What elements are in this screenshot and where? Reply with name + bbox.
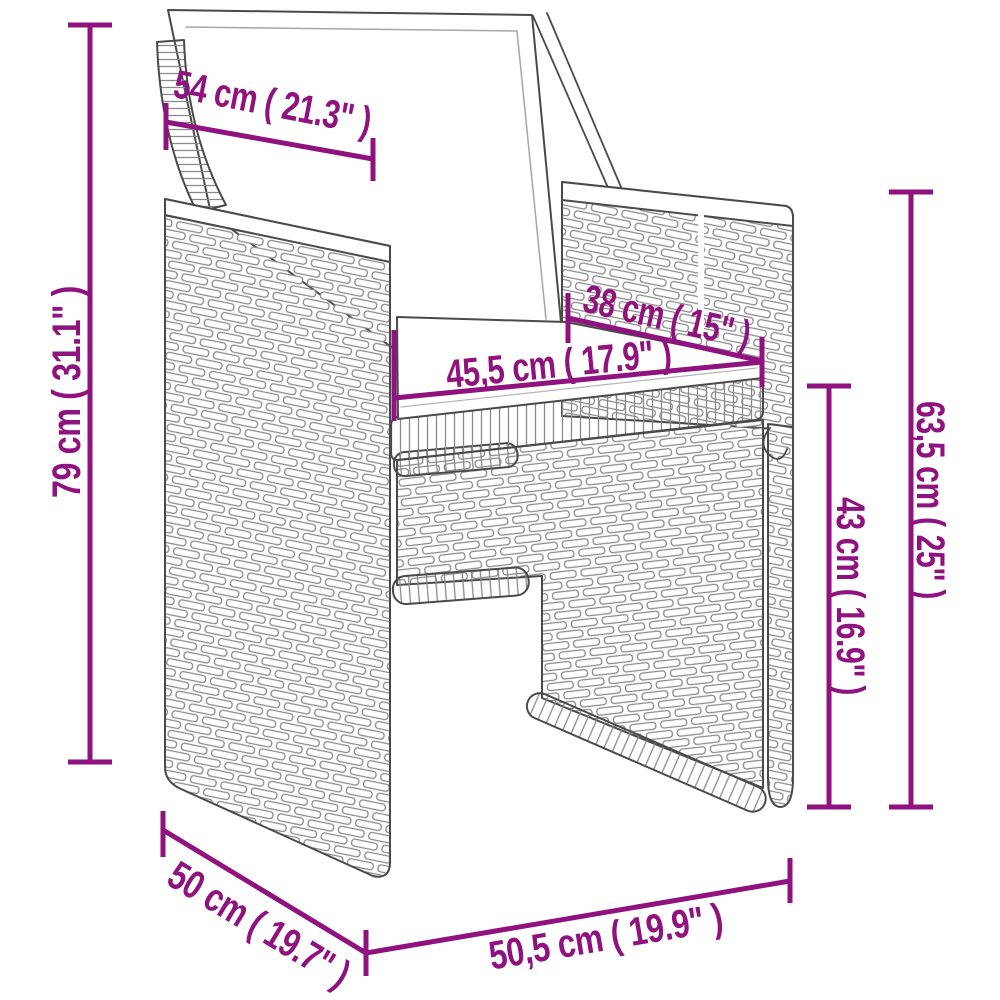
right-front-leg [768,424,793,807]
label-front-width: 50,5 cm ( 19.9" ) [486,896,726,979]
label-side-depth: 50 cm ( 19.7" ) [160,853,357,996]
chair-illustration [157,10,793,877]
product-dimensions-diagram: 54 cm ( 21.3" ) 79 cm ( 31.1" ) 38 cm ( … [0,0,1000,1000]
chair-dimensions-svg: 54 cm ( 21.3" ) 79 cm ( 31.1" ) 38 cm ( … [0,0,1000,1000]
label-armrest-height: 63,5 cm ( 25" ) [908,401,952,599]
label-back-height: 79 cm ( 31.1" ) [45,286,89,498]
label-seat-height: 43 cm ( 16.9" ) [828,497,872,695]
left-side-panel [165,199,390,877]
